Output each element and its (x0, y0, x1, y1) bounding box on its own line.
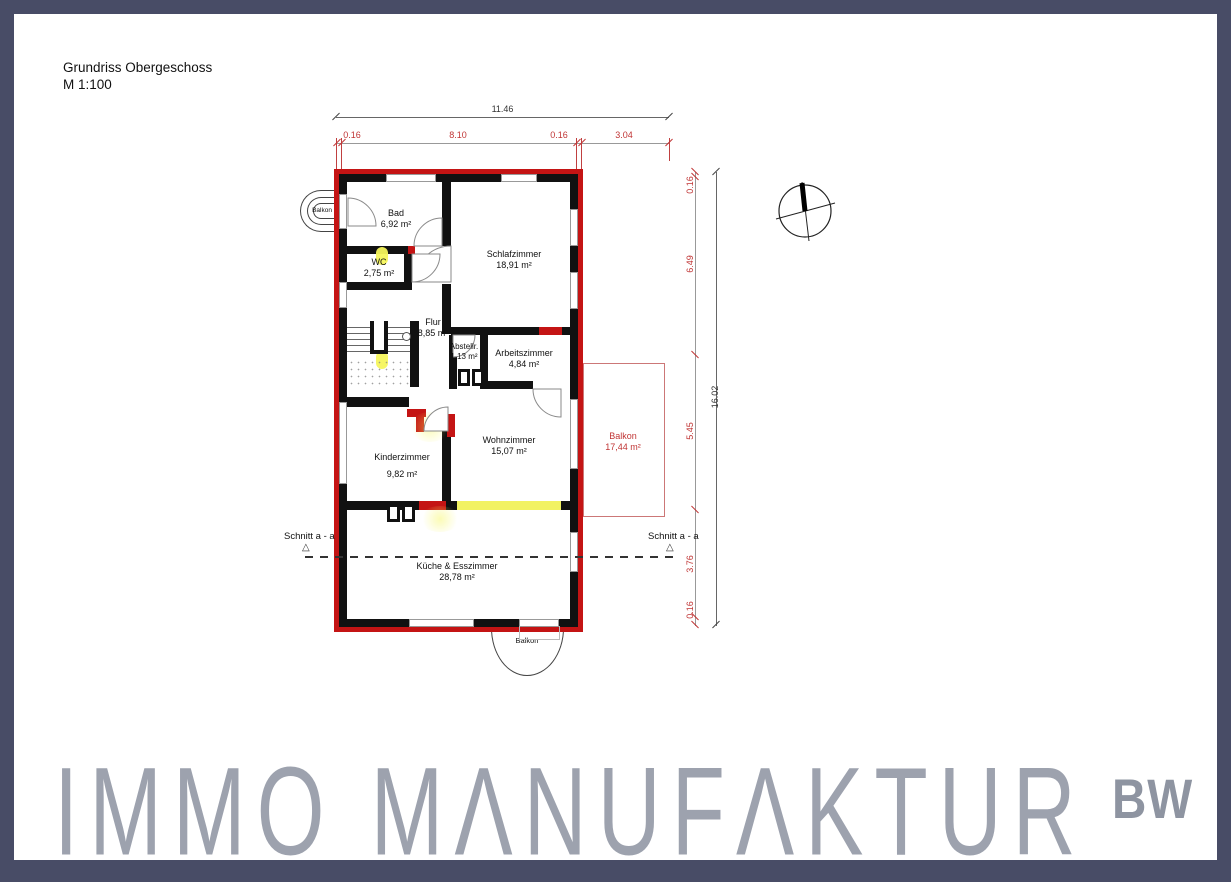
yellow-glow (419, 506, 461, 532)
room-label-balkon: Balkon 17,44 m² (581, 431, 665, 453)
dim-top-chain-0: 0.16 (338, 130, 366, 140)
room-name: Arbeitszimmer (472, 348, 576, 359)
compass-icon (776, 182, 835, 241)
room-name: Schlafzimmer (464, 249, 564, 260)
dim-right-total: 16.02 (710, 380, 720, 414)
balcony-door-detail (519, 626, 560, 640)
wall-segment (347, 282, 412, 290)
section-label-left: Schnitt a - a (284, 531, 344, 542)
room-label-wc: WC 2,75 m² (339, 257, 419, 279)
page-scale: M 1:100 (63, 76, 212, 93)
room-label-wohnzimmer: Wohnzimmer 15,07 m² (459, 435, 559, 457)
wall-segment (347, 397, 409, 407)
balcony-door-opening (339, 194, 347, 229)
section-triangle-icon: △ (302, 542, 310, 553)
room-label-kueche-esszimmer: Küche & Esszimmer 28,78 m² (392, 561, 522, 583)
dim-right-chain-1: 6.49 (685, 247, 695, 281)
kitchen-sink-icon (387, 504, 400, 522)
room-name: WC (339, 257, 419, 268)
window (386, 174, 436, 182)
window (339, 282, 347, 308)
section-label-right: Schnitt a - a (648, 531, 708, 542)
room-area: 15,07 m² (459, 446, 559, 457)
room-name: Kinderzimmer (352, 452, 452, 463)
section-dashed-line (305, 556, 677, 558)
room-area: 4,84 m² (472, 359, 576, 370)
title-block: Grundriss Obergeschoss M 1:100 (63, 59, 212, 93)
window (501, 174, 537, 182)
kitchen-sink-icon (402, 504, 415, 522)
window (409, 619, 474, 627)
dim-top-chain-2: 0.16 (545, 130, 573, 140)
floorplan-page: Grundriss Obergeschoss M 1:100 11.46 0.1… (0, 0, 1231, 882)
dim-line (336, 143, 669, 144)
yellow-glow (409, 412, 451, 442)
room-area: 2,75 m² (339, 268, 419, 279)
window (339, 402, 347, 484)
room-name: Küche & Esszimmer (392, 561, 522, 572)
wall-segment (442, 182, 451, 246)
room-area: 18,91 m² (464, 260, 564, 271)
wall-segment-red (539, 327, 562, 335)
dim-right-chain-0: 0.16 (685, 168, 695, 202)
stairs-railing (370, 321, 388, 354)
window (570, 272, 578, 309)
stairs-hatch (348, 359, 409, 386)
window (570, 209, 578, 246)
dim-top-chain-1: 8.10 (444, 130, 472, 140)
room-label-arbeitszimmer: Arbeitszimmer 4,84 m² (472, 348, 576, 370)
room-area: 6,92 m² (356, 219, 436, 230)
door-leaf-icon (472, 369, 484, 386)
highlighted-wall-yellow (457, 501, 561, 510)
room-label-bad: Bad 6,92 m² (356, 208, 436, 230)
room-area: 9,82 m² (352, 469, 452, 480)
balcony-door-opening (570, 399, 578, 469)
section-triangle-icon: △ (666, 542, 674, 553)
dim-right-chain-4: 0.16 (685, 593, 695, 627)
wall-segment-red (408, 246, 415, 254)
dim-top-chain-3: 3.04 (610, 130, 638, 140)
room-area: 17,44 m² (581, 442, 665, 453)
dim-right-chain-2: 5.45 (685, 414, 695, 448)
dim-top-total: 11.46 (336, 104, 669, 114)
room-area: 28,78 m² (392, 572, 522, 583)
room-area: 8,85 m² (393, 328, 473, 339)
room-label-kinderzimmer: Kinderzimmer 9,82 m² (352, 452, 452, 480)
wall-segment (488, 381, 533, 389)
window (570, 532, 578, 572)
dim-line (695, 172, 696, 626)
wall-segment (561, 501, 570, 510)
room-name: Flur (393, 317, 473, 328)
room-label-flur: Flur 8,85 m² (393, 317, 473, 339)
room-label-schlafzimmer: Schlafzimmer 18,91 m² (464, 249, 564, 271)
room-name: Balkon (581, 431, 665, 442)
room-name: Bad (356, 208, 436, 219)
door-leaf-icon (458, 369, 470, 386)
watermark-brand: IMMO MΛNUFΛKTUR (54, 749, 1087, 874)
dim-line (336, 117, 669, 118)
page-title: Grundriss Obergeschoss (63, 59, 212, 76)
dim-right-chain-3: 3.76 (685, 547, 695, 581)
room-name: Wohnzimmer (459, 435, 559, 446)
watermark-suffix: BW (1112, 766, 1193, 831)
